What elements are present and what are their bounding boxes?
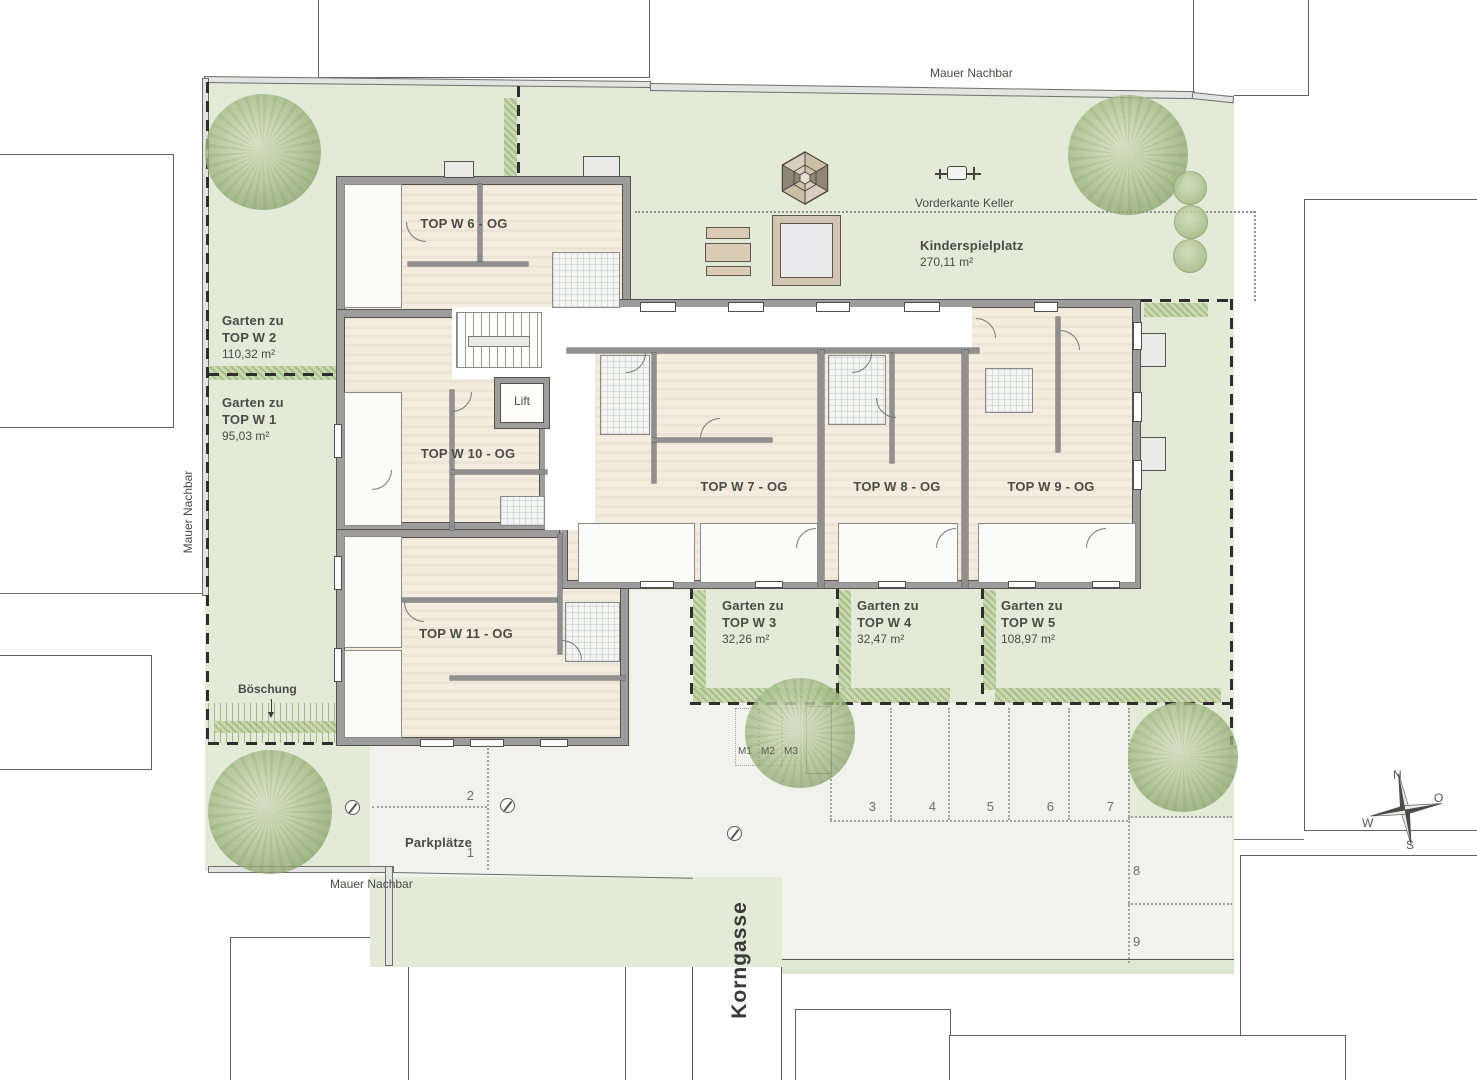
garden-label-w3: Garten zu TOP W 3 32,26 m² (722, 597, 784, 648)
window-north-3 (816, 302, 850, 312)
site-plan: Lift (0, 0, 1477, 1080)
site-bottom-green-strip (782, 959, 1234, 974)
window-box-w6-1 (444, 161, 474, 178)
parking-number-1: 1 (450, 845, 474, 860)
neighbor-property-line-bottom-right (1232, 839, 1304, 840)
wall-w7-a (652, 353, 656, 483)
moto-stall-label-m3: M3 (784, 746, 798, 757)
boundary-wall-bottom-left-h (208, 866, 394, 873)
boundary-label-top: Mauer Nachbar (930, 66, 1013, 80)
sandbox-inner (780, 223, 833, 278)
wall-w11-a (402, 598, 562, 602)
dashed-garden-top-divider (517, 86, 520, 178)
stall-line-r-left (1128, 816, 1130, 963)
window-east-2 (1133, 392, 1142, 422)
wall-w7-w8 (818, 350, 824, 588)
neighbor-building-bottom-mid-1 (795, 1009, 951, 1080)
window-south-w11-1 (420, 739, 454, 747)
stall-line-r-top (1128, 816, 1232, 818)
window-loggia-5 (1092, 581, 1120, 588)
courtyard (545, 307, 595, 530)
spring-rider-icon (935, 166, 981, 182)
neighbor-property-line-left (0, 593, 206, 594)
window-east-3 (1133, 460, 1142, 490)
playground-label: Kinderspielplatz 270,11 m² (920, 237, 1024, 271)
stall-line-m3 (948, 708, 950, 820)
bush-right-2 (1174, 205, 1208, 239)
garden-w3-unit: TOP W 3 (722, 614, 784, 631)
dashed-boundary-right (1230, 299, 1233, 745)
window-loggia-4 (1008, 581, 1036, 588)
window-box-w6-2 (583, 156, 620, 177)
drain-icon-1 (345, 800, 360, 815)
lift-label: Lift (496, 394, 548, 408)
hatch-garden-w4-left (838, 590, 851, 690)
bath-room-w9 (985, 368, 1033, 413)
drain-icon-2 (500, 798, 515, 813)
neighbor-building-bottom-left-2 (408, 955, 626, 1080)
window-west-3 (334, 648, 342, 682)
window-south-w11-3 (540, 739, 568, 747)
garden-w3-prefix: Garten zu (722, 597, 784, 614)
compass-west-label: W (1362, 816, 1373, 830)
dashed-slope-bottom (208, 742, 347, 745)
tree-top-left (205, 94, 321, 210)
dashed-garden-w3-left (690, 588, 693, 705)
garden-w2-area: 110,32 m² (222, 346, 284, 363)
storage-room-left-3 (344, 650, 402, 738)
boundary-label-left: Mauer Nachbar (181, 457, 195, 567)
hatch-top-garden-divider (504, 98, 517, 178)
parking-number-7: 7 (1090, 799, 1114, 814)
bench-2 (705, 243, 751, 262)
garden-label-w1: Garten zu TOP W 1 95,03 m² (222, 394, 284, 445)
bench-1 (706, 227, 750, 239)
loggia-w7-1 (578, 523, 695, 583)
hatch-garden-w3-left (693, 590, 706, 700)
apartment-label-w10: TOP W 10 - OG (398, 446, 538, 461)
boundary-label-bottom: Mauer Nachbar (330, 877, 413, 891)
tree-top-right (1068, 95, 1188, 215)
neighbor-building-left-2 (0, 655, 152, 770)
garden-w5-area: 108,97 m² (1001, 631, 1063, 648)
parking-number-2: 2 (450, 788, 474, 803)
garden-w2-unit: TOP W 2 (222, 329, 284, 346)
apartment-label-w9: TOP W 9 - OG (981, 479, 1121, 494)
garden-w1-area: 95,03 m² (222, 428, 284, 445)
drain-icon-3 (727, 826, 742, 841)
dashed-right-garden-top (1141, 299, 1232, 302)
hatch-garden-w5-left (983, 590, 996, 690)
tree-bottom-left (208, 750, 332, 874)
stall-line-m5 (1068, 708, 1070, 820)
window-east-1 (1133, 322, 1142, 350)
garden-label-w4: Garten zu TOP W 4 32,47 m² (857, 597, 919, 648)
loggia-w7-2 (700, 523, 818, 583)
apartment-label-w7: TOP W 7 - OG (674, 479, 814, 494)
garden-w4-prefix: Garten zu (857, 597, 919, 614)
apartment-label-w8: TOP W 8 - OG (827, 479, 967, 494)
window-loggia-3 (878, 581, 906, 588)
bench-3 (706, 266, 751, 276)
balcony-right-1 (1140, 333, 1166, 367)
parking-number-5: 5 (970, 799, 994, 814)
street-label: Korngasse (728, 875, 752, 1045)
garden-label-w2: Garten zu TOP W 2 110,32 m² (222, 312, 284, 363)
playground-area: 270,11 m² (920, 254, 1024, 271)
apartment-label-w6: TOP W 6 - OG (394, 216, 534, 231)
hatch-right-garden-top (1144, 303, 1208, 317)
apartment-label-w11: TOP W 11 - OG (396, 626, 536, 641)
window-west-2 (334, 556, 342, 590)
loggia-w9 (978, 523, 1136, 583)
wall-w11-b (558, 534, 562, 654)
neighbor-building-top-left (318, 0, 650, 78)
compass-east-label: O (1434, 791, 1443, 805)
hatch-garden-w5-bottom (995, 688, 1221, 703)
keller-line-h (635, 211, 1255, 213)
window-west-1 (334, 424, 342, 458)
keller-line-v (1254, 211, 1256, 301)
stall-line-left (487, 745, 489, 870)
window-north-4 (904, 302, 940, 312)
staircase-landing-rail (468, 336, 530, 347)
bath-room-w10 (500, 496, 545, 526)
tree-bottom-right (1128, 702, 1238, 812)
parking-number-4: 4 (912, 799, 936, 814)
dashed-garden-w1-w2 (208, 373, 345, 376)
corridor-north (567, 307, 972, 348)
storage-room-left-1 (344, 392, 402, 526)
garden-w2-prefix: Garten zu (222, 312, 284, 329)
window-loggia-2 (755, 581, 783, 588)
keller-line-label: Vorderkante Keller (915, 196, 1014, 210)
slope-label: Böschung (238, 682, 297, 696)
neighbor-building-right (1304, 199, 1477, 831)
dashed-garden-w5-left (981, 588, 984, 705)
dashed-garden-w4-left (836, 588, 839, 705)
window-north-2 (728, 302, 764, 312)
garden-w4-area: 32,47 m² (857, 631, 919, 648)
window-north-1 (640, 302, 676, 312)
balcony-right-2 (1140, 437, 1166, 471)
dashed-boundary-left (206, 82, 209, 745)
bath-room-w6 (552, 252, 620, 308)
window-loggia-1 (640, 581, 674, 588)
garden-w5-prefix: Garten zu (1001, 597, 1063, 614)
garden-label-w5: Garten zu TOP W 5 108,97 m² (1001, 597, 1063, 648)
stall-line-m2 (890, 708, 892, 820)
wall-w7-b (652, 438, 772, 442)
parking-number-9: 9 (1133, 934, 1140, 949)
compass-north-label: N (1393, 768, 1402, 782)
storage-room-left-2 (344, 536, 402, 648)
parking-number-6: 6 (1030, 799, 1054, 814)
neighbor-building-bottom-mid-2 (949, 1035, 1346, 1080)
parking-number-3: 3 (852, 799, 876, 814)
wall-w8-w9 (962, 350, 968, 588)
stall-line-left-div (372, 806, 487, 808)
tree-mid-bottom (745, 678, 855, 788)
garden-w4-unit: TOP W 4 (857, 614, 919, 631)
wall-w11-c (450, 676, 625, 680)
window-north-5 (1034, 302, 1058, 312)
slope-arrow (271, 699, 272, 715)
neighbor-building-top-right (1193, 0, 1309, 96)
wall-w6-b (408, 262, 528, 266)
stall-line-m-bottom (830, 820, 1128, 822)
moto-stall-label-m2: M2 (761, 746, 775, 757)
bath-room-w7 (600, 355, 650, 435)
garden-w3-area: 32,26 m² (722, 631, 784, 648)
moto-stall-label-m1: M1 (738, 746, 752, 757)
garden-w5-unit: TOP W 5 (1001, 614, 1063, 631)
garden-w1-prefix: Garten zu (222, 394, 284, 411)
bush-right-1 (1173, 171, 1207, 205)
storage-room-w6 (344, 184, 402, 308)
garden-w1-unit: TOP W 1 (222, 411, 284, 428)
bush-right-3 (1173, 239, 1207, 273)
stall-line-r-div (1128, 903, 1232, 905)
slope-hatch-band (214, 721, 340, 733)
loggia-w8 (838, 523, 958, 583)
compass-south-label: S (1406, 838, 1414, 852)
playground-name: Kinderspielplatz (920, 237, 1024, 254)
stall-line-m4 (1008, 708, 1010, 820)
neighbor-building-left-1 (0, 154, 174, 428)
wall-w10-b (450, 470, 547, 474)
parking-number-8: 8 (1133, 863, 1140, 878)
climbing-dome-icon (776, 149, 834, 207)
